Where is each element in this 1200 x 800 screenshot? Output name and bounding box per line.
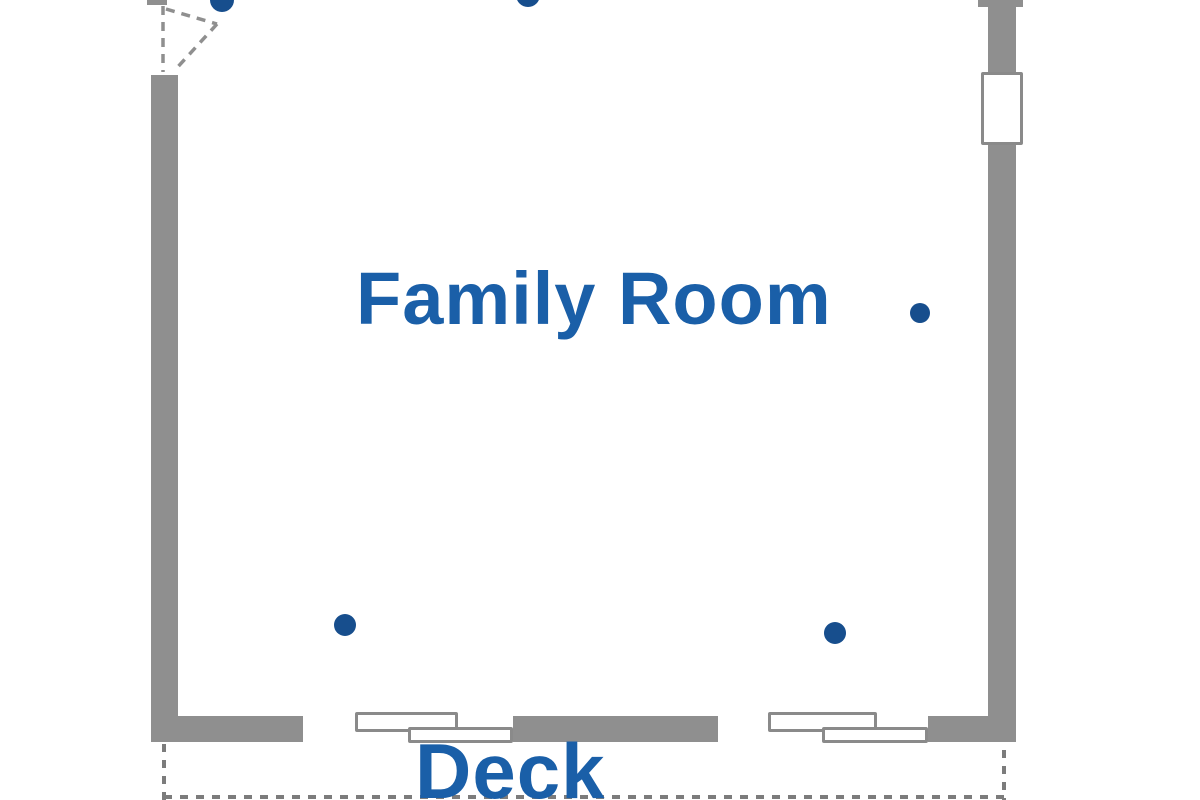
wall-left [151,75,178,742]
wall-right-upper [988,0,1016,74]
wall-top-left-fragment [147,0,167,5]
family-room-label: Family Room [356,262,832,336]
door-swing-icon [163,6,217,72]
dot-marker-top-middle [516,0,540,7]
dot-marker-lower-left [334,614,356,636]
sliding-window-bottom-right-lower-pane [822,727,928,743]
floor-plan: Family Room Deck [0,0,1200,800]
window-right-wall [981,72,1023,145]
dot-marker-family-room [910,303,930,323]
deck-label: Deck [415,732,605,800]
dot-marker-top-door [210,0,234,12]
wall-right-lower [988,143,1016,742]
dot-marker-lower-right [824,622,846,644]
wall-bottom-left-segment [151,716,303,742]
